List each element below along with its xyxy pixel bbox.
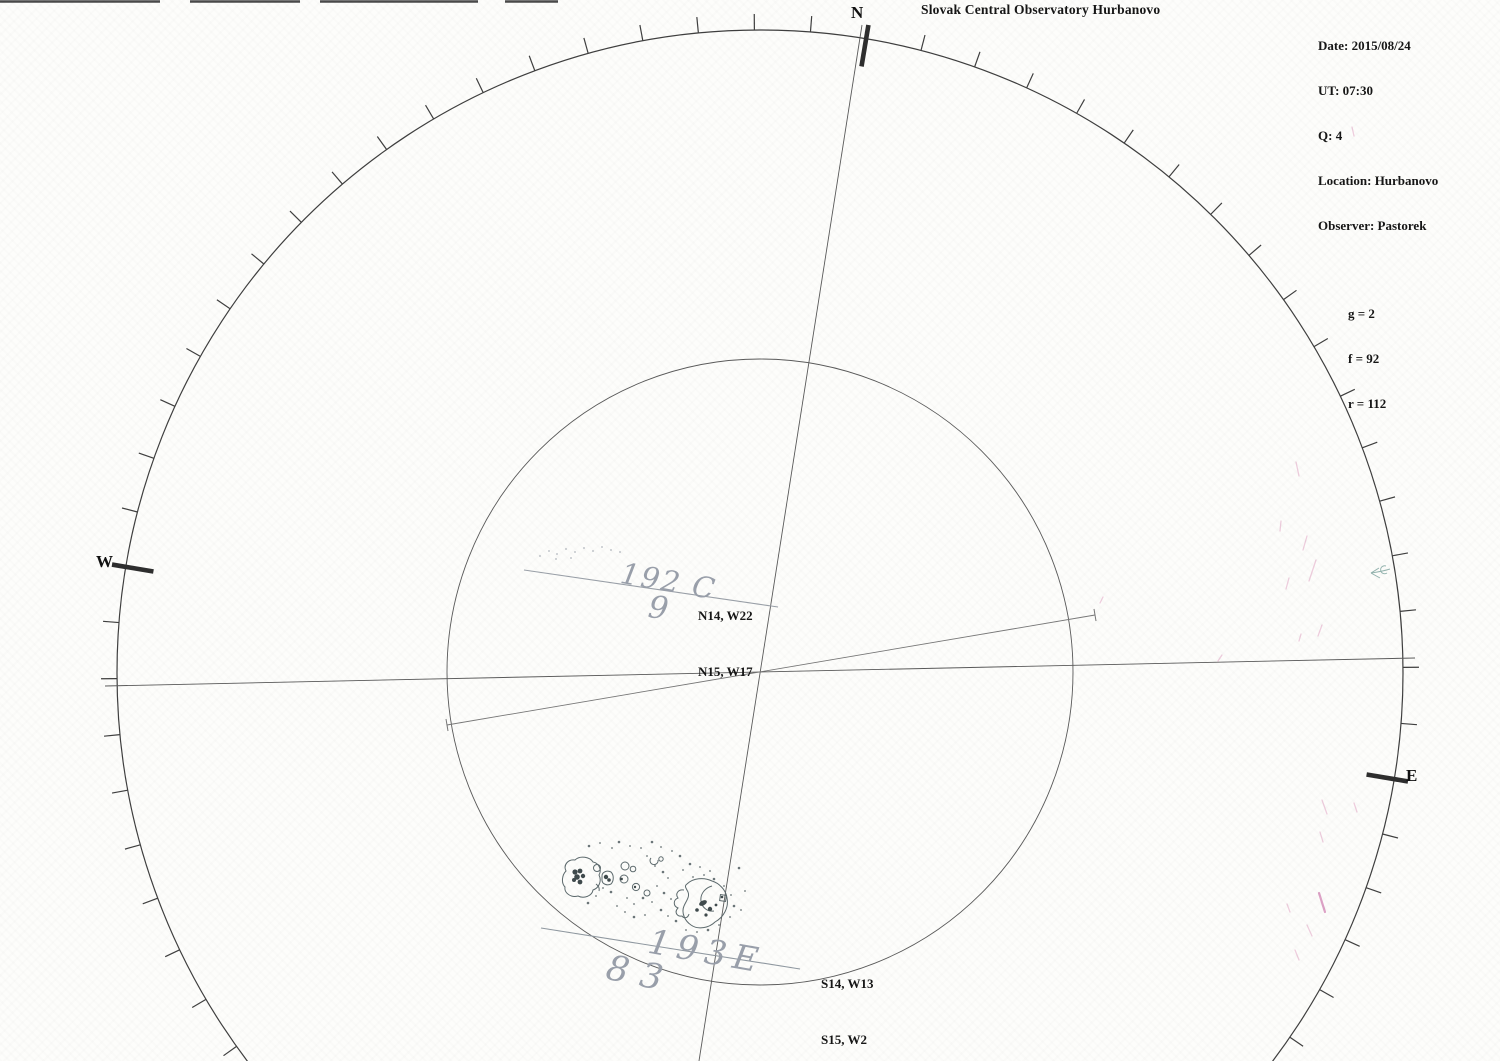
square-spot (720, 895, 727, 902)
disk-cardinal-ticks (112, 25, 1408, 781)
ring-spot (644, 890, 650, 896)
umbra-dot (634, 886, 636, 888)
group-192-coord-line1: N14, W22 (698, 607, 753, 626)
ring-spot (630, 866, 636, 872)
info-date: Date: 2015/08/24 (1318, 38, 1438, 53)
compass-north-label: N (851, 3, 863, 23)
sunspot-group-193-sketch (562, 857, 727, 928)
group-193-coord-line2: S15, W2 (821, 1031, 874, 1050)
ring-spot (659, 857, 663, 861)
axis-lines (105, 25, 1415, 1061)
umbra-left (572, 869, 585, 885)
observation-info-block: Date: 2015/08/24 UT: 07:30 Q: 4 Location… (1318, 8, 1438, 471)
umbra-dot (721, 896, 724, 899)
solar-disk-drawing (0, 0, 1500, 1061)
compass-east-label: E (1406, 766, 1417, 786)
observatory-title: Slovak Central Observatory Hurbanovo (921, 2, 1160, 18)
info-quality: Q: 4 (1318, 128, 1438, 143)
observation-sheet: Slovak Central Observatory Hurbanovo Dat… (0, 0, 1500, 1061)
umbra-dot (620, 878, 623, 881)
solar-disk-circle (117, 30, 1403, 1061)
sunspot-counts: g = 2 f = 92 r = 112 (1318, 276, 1438, 441)
count-spots: f = 92 (1348, 351, 1438, 366)
group-192-coord-line2: N15, W17 (698, 663, 753, 682)
pencil-arrow-doodle (1371, 566, 1390, 578)
group-193-coordinates: S14, W13 S15, W2 (821, 938, 874, 1061)
count-groups: g = 2 (1348, 306, 1438, 321)
info-location: Location: Hurbanovo (1318, 173, 1438, 188)
crescent-left-arm (674, 890, 689, 918)
info-ut: UT: 07:30 (1318, 83, 1438, 98)
group-pointer-lines (524, 570, 800, 969)
info-observer: Observer: Pastorek (1318, 218, 1438, 233)
umbra-2 (604, 875, 611, 882)
umbra-right (695, 899, 717, 917)
group-193-coord-line1: S14, W13 (821, 975, 874, 994)
count-wolf-number: r = 112 (1348, 396, 1438, 411)
compass-west-label: W (96, 552, 113, 572)
ring-spot (621, 862, 629, 870)
disk-degree-ticks (101, 14, 1419, 1061)
group-192-faint-remnant (539, 546, 621, 560)
crescent-inner-curl (701, 886, 714, 911)
sunspot-pore-dots (587, 841, 746, 933)
open-ring (650, 858, 658, 865)
